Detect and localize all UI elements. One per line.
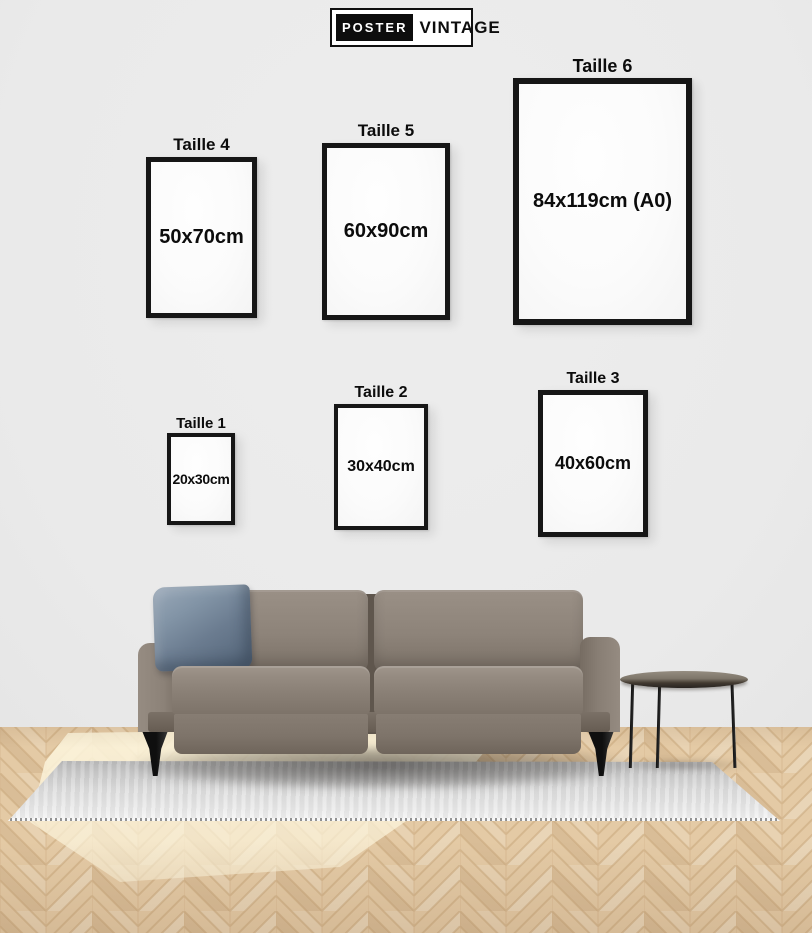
frame-size-text: 40x60cm xyxy=(555,453,631,474)
frame-size-text: 60x90cm xyxy=(344,220,429,243)
frame-title: Taille 3 xyxy=(503,370,683,388)
throw-pillow xyxy=(153,584,253,671)
logo-vintage-text: VINTAGE xyxy=(413,18,500,38)
logo-poster-badge: POSTER xyxy=(336,14,413,41)
frame-size-text: 50x70cm xyxy=(159,226,244,249)
table-top xyxy=(620,671,748,688)
frame-size-text: 84x119cm (A0) xyxy=(533,190,672,213)
frame-title: Taille 4 xyxy=(111,135,292,155)
sofa-back-cushion-left xyxy=(234,590,368,672)
poster-frame-taille-4: Taille 4 50x70cm xyxy=(146,157,257,318)
frame-size-text: 20x30cm xyxy=(172,471,229,487)
poster-size-guide-scene: POSTER VINTAGE Taille 4 50x70cm Taille 5… xyxy=(0,0,812,933)
poster-frame-taille-5: Taille 5 60x90cm xyxy=(322,143,450,320)
poster-frame-taille-1: Taille 1 20x30cm xyxy=(167,433,235,525)
table-leg xyxy=(656,684,661,768)
poster-frame-taille-6: Taille 6 84x119cm (A0) xyxy=(513,78,692,325)
frame-title: Taille 1 xyxy=(131,415,271,432)
sofa-leg-left xyxy=(142,732,168,776)
table-leg xyxy=(731,684,737,768)
frame-title: Taille 5 xyxy=(287,121,485,141)
frame-title: Taille 6 xyxy=(479,56,726,77)
side-table xyxy=(620,671,748,771)
frame-title: Taille 2 xyxy=(298,384,464,402)
sofa-seat-cushion-left xyxy=(172,666,370,714)
sofa-leg-right xyxy=(588,732,614,776)
poster-frame-taille-2: Taille 2 30x40cm xyxy=(334,404,428,530)
frame-size-text: 30x40cm xyxy=(347,458,415,476)
sofa-back-cushion-right xyxy=(374,590,583,672)
sofa xyxy=(138,586,620,778)
table-leg xyxy=(629,684,634,768)
poster-frame-taille-3: Taille 3 40x60cm xyxy=(538,390,648,537)
sofa-seat-cushion-right xyxy=(374,666,583,714)
poster-vintage-logo: POSTER VINTAGE xyxy=(330,8,473,47)
